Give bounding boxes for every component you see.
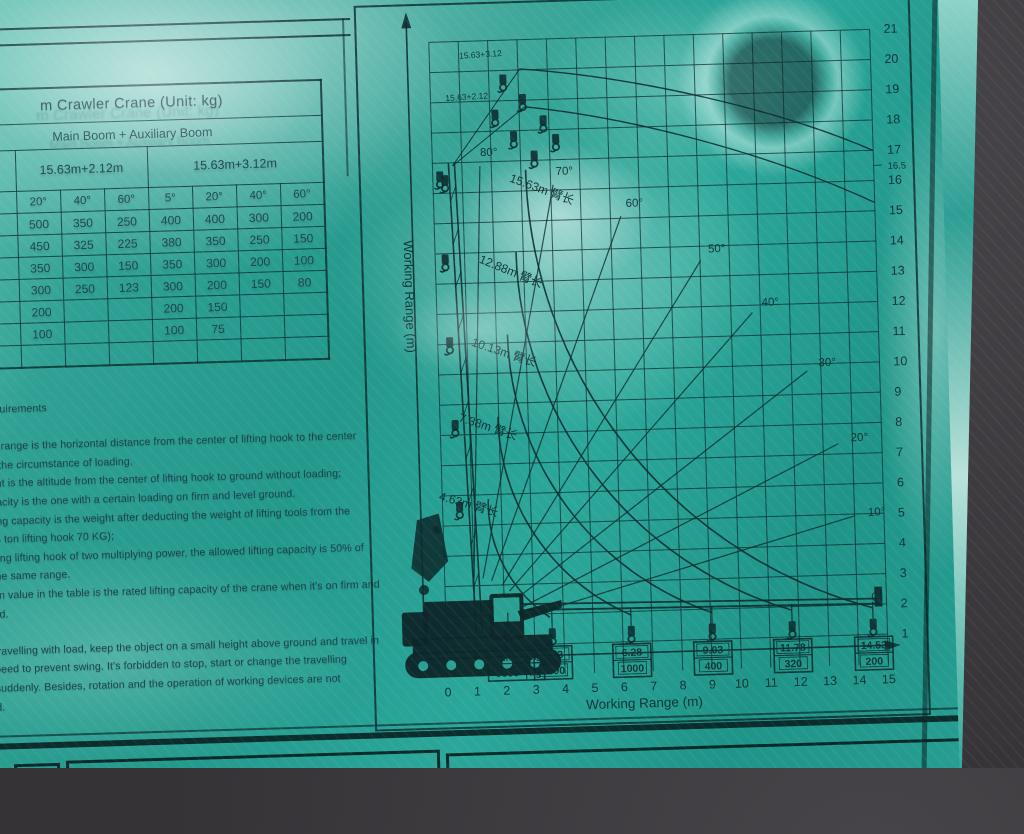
hook-icon xyxy=(707,623,717,641)
config-label: 15.63+3.12 xyxy=(459,48,503,61)
section-frame-line-top xyxy=(0,18,350,31)
hook-icon xyxy=(497,74,507,92)
svg-text:kg: kg xyxy=(529,667,542,679)
capacity-cell xyxy=(240,316,285,339)
svg-text:2.1: 2.1 xyxy=(500,651,515,663)
x-axis-title: Working Range (m) xyxy=(586,694,703,712)
capacity-cell: 200 xyxy=(19,300,64,323)
capacity-cell xyxy=(64,321,109,344)
jib-arc xyxy=(525,97,875,213)
capacity-cell: 400 xyxy=(193,207,238,230)
svg-text:14.53: 14.53 xyxy=(861,639,888,652)
boom-arc xyxy=(516,244,792,618)
capacity-cell: 350 xyxy=(61,211,106,234)
x-tick-label: 11 xyxy=(765,676,778,690)
next-panel-frame xyxy=(14,763,62,830)
angle-label: 10° xyxy=(868,506,886,519)
angle-label: 60° xyxy=(625,197,643,210)
x-tick-label: 4 xyxy=(562,682,569,696)
y-tick-label: 16.5 xyxy=(887,160,906,172)
x-tick-label: 15 xyxy=(882,672,896,686)
table-config-right: 15.63m+3.12m xyxy=(147,141,324,187)
hook-icon xyxy=(529,150,539,168)
angle-header-cell: 40° xyxy=(236,184,281,207)
angle-header-cell xyxy=(0,191,17,215)
y-tick-label: 1 xyxy=(901,626,908,640)
x-tick-label: 3 xyxy=(533,683,540,697)
notes-block: equirements of range is the horizontal d… xyxy=(0,390,376,717)
capacity-cell xyxy=(109,341,154,365)
capacity-cell: 500 xyxy=(17,212,62,235)
capacity-cell: 150 xyxy=(0,323,21,347)
radius-capacity-box: 9.03400 xyxy=(694,641,733,675)
load-chart-table-body: m Crawler Crane (Unit: kg)Main Boom + Au… xyxy=(0,80,329,370)
y-tick-label: 7 xyxy=(896,445,903,459)
capacity-cell: 300 xyxy=(237,206,282,229)
svg-text:3.53: 3.53 xyxy=(543,649,564,662)
angle-label: 20° xyxy=(851,432,869,445)
capacity-cell: 325 xyxy=(61,233,106,256)
x-tick-label: 5 xyxy=(591,681,598,695)
y-tick-label: 20 xyxy=(884,52,898,66)
boom-length-label: 12.88m 臂长 xyxy=(477,252,545,291)
capacity-cell: 150 xyxy=(239,272,284,295)
hook-icon xyxy=(787,621,797,639)
y-axis-title: Working Range (m) xyxy=(401,240,419,353)
capacity-cell xyxy=(283,292,328,315)
next-panel-frame xyxy=(446,737,1014,820)
hook-icon xyxy=(440,254,450,272)
y-axis-arrow-icon xyxy=(401,12,411,28)
capacity-cell xyxy=(240,338,285,362)
y-tick-label: 17 xyxy=(887,142,901,156)
angle-label: 40° xyxy=(761,296,779,309)
section-frame-line-inner xyxy=(0,34,351,47)
capacity-cell xyxy=(21,344,66,368)
boom-angle-lines xyxy=(462,155,857,618)
angle-header-cell: 20° xyxy=(16,190,61,213)
svg-text:400: 400 xyxy=(704,660,722,673)
next-panel-frame xyxy=(66,750,442,827)
x-tick-label: 0 xyxy=(444,685,451,699)
capacity-cell xyxy=(284,336,329,360)
capacity-cell: 250 xyxy=(0,301,20,325)
panel-rotation-wrap: m Crawler Crane (Unit: kg)Main Boom + Au… xyxy=(0,0,1024,782)
section-frame-line-side xyxy=(342,18,349,176)
angle-label: 80° xyxy=(480,147,498,160)
angle-label: 70° xyxy=(555,165,573,178)
angle-label: 50° xyxy=(708,243,726,256)
capacity-cell: 350 xyxy=(18,256,63,279)
capacity-cell: 50 xyxy=(0,257,19,281)
capacity-cell xyxy=(239,294,284,317)
angle-header-cell: 60° xyxy=(104,188,149,211)
y-tick-label: 2 xyxy=(900,596,907,610)
capacity-cell: 150 xyxy=(195,295,240,318)
capacity-cell: 250 xyxy=(105,210,150,233)
capacity-cell: 300 xyxy=(194,251,239,274)
angle-header-cell: 60° xyxy=(280,182,325,205)
capacity-cell: 50 xyxy=(0,279,19,303)
y-tick-label: 3 xyxy=(900,566,907,580)
angle-label: 30° xyxy=(818,357,836,370)
capacity-cell: 350 xyxy=(193,229,238,252)
capacity-cell xyxy=(108,319,153,342)
x-tick-label: 6 xyxy=(621,680,628,694)
y-tick-labels: 1234567891011121314151616.51718192021 xyxy=(883,21,920,640)
x-tick-label: 9 xyxy=(709,677,716,691)
capacity-cell: 123 xyxy=(107,276,152,299)
svg-text:2300: 2300 xyxy=(542,665,566,678)
svg-text:1000: 1000 xyxy=(621,663,645,676)
y-tick-label: 10 xyxy=(893,354,907,368)
working-range-chart: 0123456789101112131415123456789101112131… xyxy=(380,0,941,735)
capacity-cell: 300 xyxy=(62,255,107,278)
capacity-cell: 400 xyxy=(149,208,194,231)
y-tick-label: 4 xyxy=(899,536,906,550)
svg-text:320: 320 xyxy=(784,658,802,671)
y-tick-label: 14 xyxy=(890,233,904,247)
x-tick-label: 2 xyxy=(503,684,510,698)
capacity-cell: 150 xyxy=(106,254,151,277)
angle-header-cell: 5° xyxy=(148,186,193,209)
capacity-cell xyxy=(153,340,198,364)
radius-capacity-box: 6.281000 xyxy=(613,643,652,677)
svg-text:11.78: 11.78 xyxy=(780,642,806,655)
hook-icon xyxy=(489,110,499,128)
capacity-cell: 300 xyxy=(19,278,64,301)
x-tick-label: 13 xyxy=(823,674,837,688)
y-tick-label: 18 xyxy=(886,112,900,126)
y-tick-label: 11 xyxy=(892,324,905,338)
capacity-cell: 100 xyxy=(20,322,65,345)
capacity-cell: 225 xyxy=(105,232,150,255)
capacity-cell: 350 xyxy=(150,252,195,275)
capacity-cell: 250 xyxy=(237,228,282,251)
capacity-cell: 100 xyxy=(282,248,327,271)
load-chart-table: m Crawler Crane (Unit: kg)Main Boom + Au… xyxy=(0,79,330,371)
y-tick-label: 21 xyxy=(883,21,897,35)
hook-icon xyxy=(626,626,636,644)
capacity-cell: 150 xyxy=(281,226,326,249)
capacity-cell: 380 xyxy=(149,230,194,253)
angle-header-cell: 20° xyxy=(192,185,237,208)
x-tick-label: 10 xyxy=(735,676,749,690)
capacity-cell xyxy=(63,299,108,322)
capacity-cell: 200 xyxy=(281,204,326,227)
y-tick-label: 5 xyxy=(898,505,905,519)
boom-length-label: 7.38m 臂长 xyxy=(457,411,519,443)
placard-panel: m Crawler Crane (Unit: kg)Main Boom + Au… xyxy=(0,0,1024,768)
y-tick-label: 6 xyxy=(897,475,904,489)
hook-icon xyxy=(508,131,518,149)
capacity-cell: 200 xyxy=(195,273,240,296)
capacity-cell: 50 xyxy=(0,345,21,370)
x-tick-label: 7 xyxy=(650,679,657,693)
capacity-cell: 75 xyxy=(196,317,241,340)
hook-icon xyxy=(868,619,878,637)
table-config-left: 15.63m+2.12m xyxy=(15,147,148,192)
boom-length-arcs xyxy=(478,160,872,619)
y-tick-label: 15 xyxy=(889,203,903,217)
radius-capacity-box: 11.78320 xyxy=(774,639,813,673)
capacity-cell: 250 xyxy=(63,277,108,300)
x-tick-label: 14 xyxy=(852,673,866,687)
y-tick-label: 16 xyxy=(888,173,902,187)
x-tick-label: 12 xyxy=(794,675,808,689)
svg-text:5000: 5000 xyxy=(496,667,520,680)
capacity-cell xyxy=(65,343,110,367)
x-tick-label: 1 xyxy=(474,684,481,698)
y-tick-label: 13 xyxy=(891,263,905,277)
svg-text:200: 200 xyxy=(865,655,883,668)
hook-icon xyxy=(550,134,560,152)
capacity-cell: 80 xyxy=(0,235,18,259)
capacity-cell xyxy=(284,314,329,337)
angle-label: 0° xyxy=(871,591,882,603)
y-tick-label: 9 xyxy=(894,385,901,399)
x-tick-label: 8 xyxy=(679,678,686,692)
capacity-cell: 200 xyxy=(151,296,196,319)
capacity-cell: 200 xyxy=(238,250,283,273)
capacity-cell: 300 xyxy=(151,274,196,297)
capacity-cell: 450 xyxy=(17,234,62,257)
raised-boom xyxy=(448,163,482,633)
photo-background: { "table": { "title": "m Crawler Crane (… xyxy=(0,0,1024,768)
capacity-cell xyxy=(107,297,152,320)
capacity-cell: 0 xyxy=(0,213,17,237)
capacity-cell: 80 xyxy=(283,270,328,293)
capacity-cell: 100 xyxy=(152,318,197,341)
y-tick-label: 12 xyxy=(891,294,905,308)
y-tick-label: 19 xyxy=(885,82,899,96)
y-tick-label: 8 xyxy=(895,415,902,429)
capacity-cell xyxy=(197,339,242,363)
svg-text:6.28: 6.28 xyxy=(622,647,643,660)
angle-header-cell: 40° xyxy=(60,189,105,212)
svg-text:9.03: 9.03 xyxy=(703,644,724,657)
hook-icon xyxy=(444,337,454,355)
